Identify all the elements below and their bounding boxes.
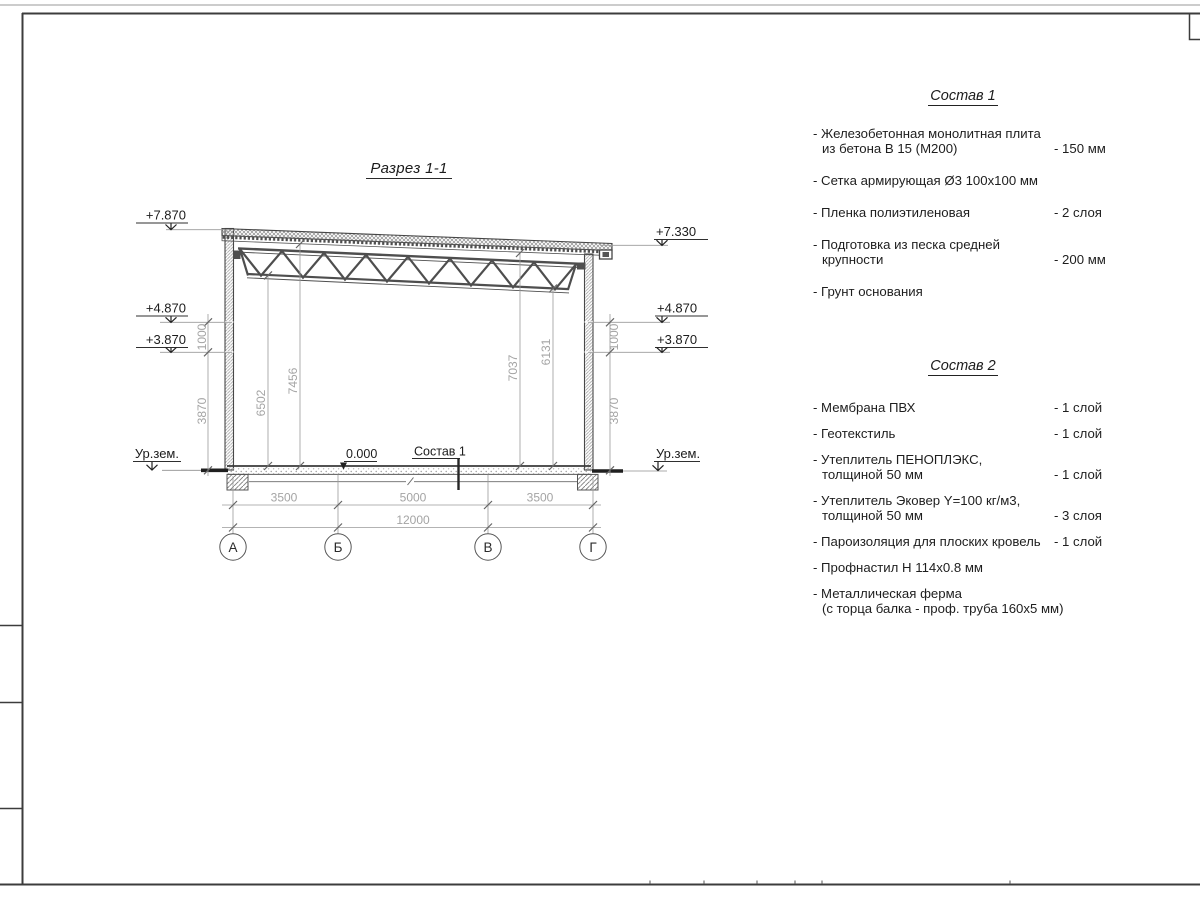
zero-mark-text: 0.000 <box>346 447 377 461</box>
foundation-right <box>578 474 599 490</box>
elev-left-4870: +4.870 <box>146 301 186 316</box>
spec-item: - Подготовка из песка среднейкрупности -… <box>813 237 1113 267</box>
elevation-shelves <box>133 223 708 462</box>
spec-item-line1: - Профнастил Н 114х0.8 мм <box>813 560 1058 575</box>
axis-bubbles: А Б В Г <box>220 534 606 560</box>
right-wall <box>585 254 594 470</box>
dim-interior-7456: 7456 <box>286 367 300 394</box>
dim-span-1: 3500 <box>271 491 298 505</box>
elev-right-3870: +3.870 <box>657 332 697 347</box>
drawing-sheet: Разрез 1-1 <box>0 0 1200 900</box>
spec-item: - Мембрана ПВХ - 1 слой <box>813 400 1113 415</box>
spec-item-value: - 1 слой <box>1054 426 1113 441</box>
spec-item: - Сетка армирующая Ø3 100х100 мм <box>813 173 1113 188</box>
spec-item: - Железобетонная монолитная плитаиз бето… <box>813 126 1113 156</box>
floor-callout-text: Состав 1 <box>414 445 466 459</box>
spec2-title-text: Состав 2 <box>928 358 997 376</box>
dim-interior-6131: 6131 <box>539 338 553 365</box>
subbase-break-mark <box>408 478 414 486</box>
spec-item: - Металлическая ферма(с торца балка - пр… <box>813 586 1113 616</box>
spec1-items: - Железобетонная монолитная плитаиз бето… <box>813 126 1113 299</box>
titleblock-ticks <box>650 881 1010 885</box>
axis-label-a: А <box>228 540 237 555</box>
spec-panel-2: Состав 2 - Мембрана ПВХ - 1 слой - Геоте… <box>813 358 1113 627</box>
spec-item: - Профнастил Н 114х0.8 мм <box>813 560 1113 575</box>
drawing-title: Разрез 1-1 <box>366 160 452 179</box>
truss-diagonals <box>240 249 576 289</box>
dim-left-3870: 3870 <box>195 397 209 424</box>
spec-item-line1: - Сетка армирующая Ø3 100х100 мм <box>813 173 1058 188</box>
spec1-title: Состав 1 <box>813 88 1113 104</box>
spec-item-line1: - Подготовка из песка средней <box>813 237 1054 252</box>
spec-item: - Геотекстиль - 1 слой <box>813 426 1113 441</box>
spec-item-line1: - Мембрана ПВХ <box>813 400 1054 415</box>
spec-item-value: - 3 слоя <box>1054 508 1113 523</box>
elev-right-4870: +4.870 <box>657 301 697 316</box>
steel-truss <box>238 248 578 293</box>
dimension-texts: 3500 5000 3500 12000 1000 3870 1000 3870… <box>195 323 621 527</box>
spec-item-line2: (с торца балка - проф. труба 160х5 мм) <box>813 601 1058 616</box>
spec-item: - Пленка полиэтиленовая - 2 слоя <box>813 205 1113 220</box>
truss-bottom-chord <box>247 274 569 289</box>
spec1-title-text: Состав 1 <box>928 88 997 106</box>
spec2-items: - Мембрана ПВХ - 1 слой - Геотекстиль - … <box>813 400 1113 616</box>
spec-item-value: - 1 слой <box>1054 534 1113 549</box>
left-stamp-dividers <box>0 626 23 809</box>
dim-span-2: 5000 <box>400 491 427 505</box>
elev-left-3870: +3.870 <box>146 332 186 347</box>
axis-label-b: Б <box>334 540 343 555</box>
spec-item-line1: - Геотекстиль <box>813 426 1054 441</box>
spec-item-line1: - Пленка полиэтиленовая <box>813 205 1054 220</box>
spec-item-line2: крупности <box>813 252 1054 267</box>
elev-left-ground: Ур.зем. <box>135 446 179 461</box>
dim-left-1000: 1000 <box>195 323 209 350</box>
roof-edge-box-inner <box>603 252 610 257</box>
spec-item: - Пароизоляция для плоских кровель - 1 с… <box>813 534 1113 549</box>
drawing-title-text: Разрез 1-1 <box>370 160 447 177</box>
axis-label-v: В <box>483 540 492 555</box>
spec-panel-1: Состав 1 - Железобетонная монолитная пли… <box>813 88 1113 316</box>
spec-item-value: - 150 мм <box>1054 141 1113 156</box>
frame-corner-box <box>1190 14 1200 40</box>
spec-item-line2: из бетона В 15 (М200) <box>813 141 1054 156</box>
spec-item-line2: толщиной 50 мм <box>813 467 1054 482</box>
spec-item-line2: толщиной 50 мм <box>813 508 1054 523</box>
dim-total: 12000 <box>396 513 430 527</box>
spec-item: - Грунт основания <box>813 284 1113 299</box>
spec-item-line1: - Пароизоляция для плоских кровель <box>813 534 1054 549</box>
spec-item: - Утеплитель Эковер Y=100 кг/м3,толщиной… <box>813 493 1113 523</box>
foundation-left <box>227 474 248 490</box>
spec-item-value: - 1 слой <box>1054 467 1113 482</box>
dim-span-3: 3500 <box>527 491 554 505</box>
dim-right-3870: 3870 <box>607 397 621 424</box>
spec-item-line1: - Утеплитель ПЕНОПЛЭКС, <box>813 452 1054 467</box>
spec-item-value: - 1 слой <box>1054 400 1113 415</box>
spec-item-value: - 200 мм <box>1054 252 1113 267</box>
truss-bearing-right <box>577 263 586 270</box>
left-wall <box>225 229 234 471</box>
floor-slab <box>227 466 591 485</box>
dim-ticks <box>204 240 614 532</box>
spec-item-line1: - Железобетонная монолитная плита <box>813 126 1054 141</box>
spec2-title: Состав 2 <box>813 358 1113 374</box>
truss-bottom-chord-inner <box>247 278 569 293</box>
elev-right-7330: +7.330 <box>656 224 696 239</box>
spec-item-value: - 2 слоя <box>1054 205 1113 220</box>
spec-item: - Утеплитель ПЕНОПЛЭКС,толщиной 50 мм - … <box>813 452 1113 482</box>
floor-hatch <box>227 467 591 474</box>
axis-label-g: Г <box>589 540 597 555</box>
dim-right-1000: 1000 <box>607 323 621 350</box>
elev-right-ground: Ур.зем. <box>656 446 700 461</box>
spec-item-line1: - Грунт основания <box>813 284 1058 299</box>
dim-interior-6502: 6502 <box>254 389 268 416</box>
spec-item-line1: - Утеплитель Эковер Y=100 кг/м3, <box>813 493 1054 508</box>
dim-interior-7037: 7037 <box>506 354 520 381</box>
spec-item-line1: - Металлическая ферма <box>813 586 1058 601</box>
elev-left-7870: +7.870 <box>146 208 186 223</box>
